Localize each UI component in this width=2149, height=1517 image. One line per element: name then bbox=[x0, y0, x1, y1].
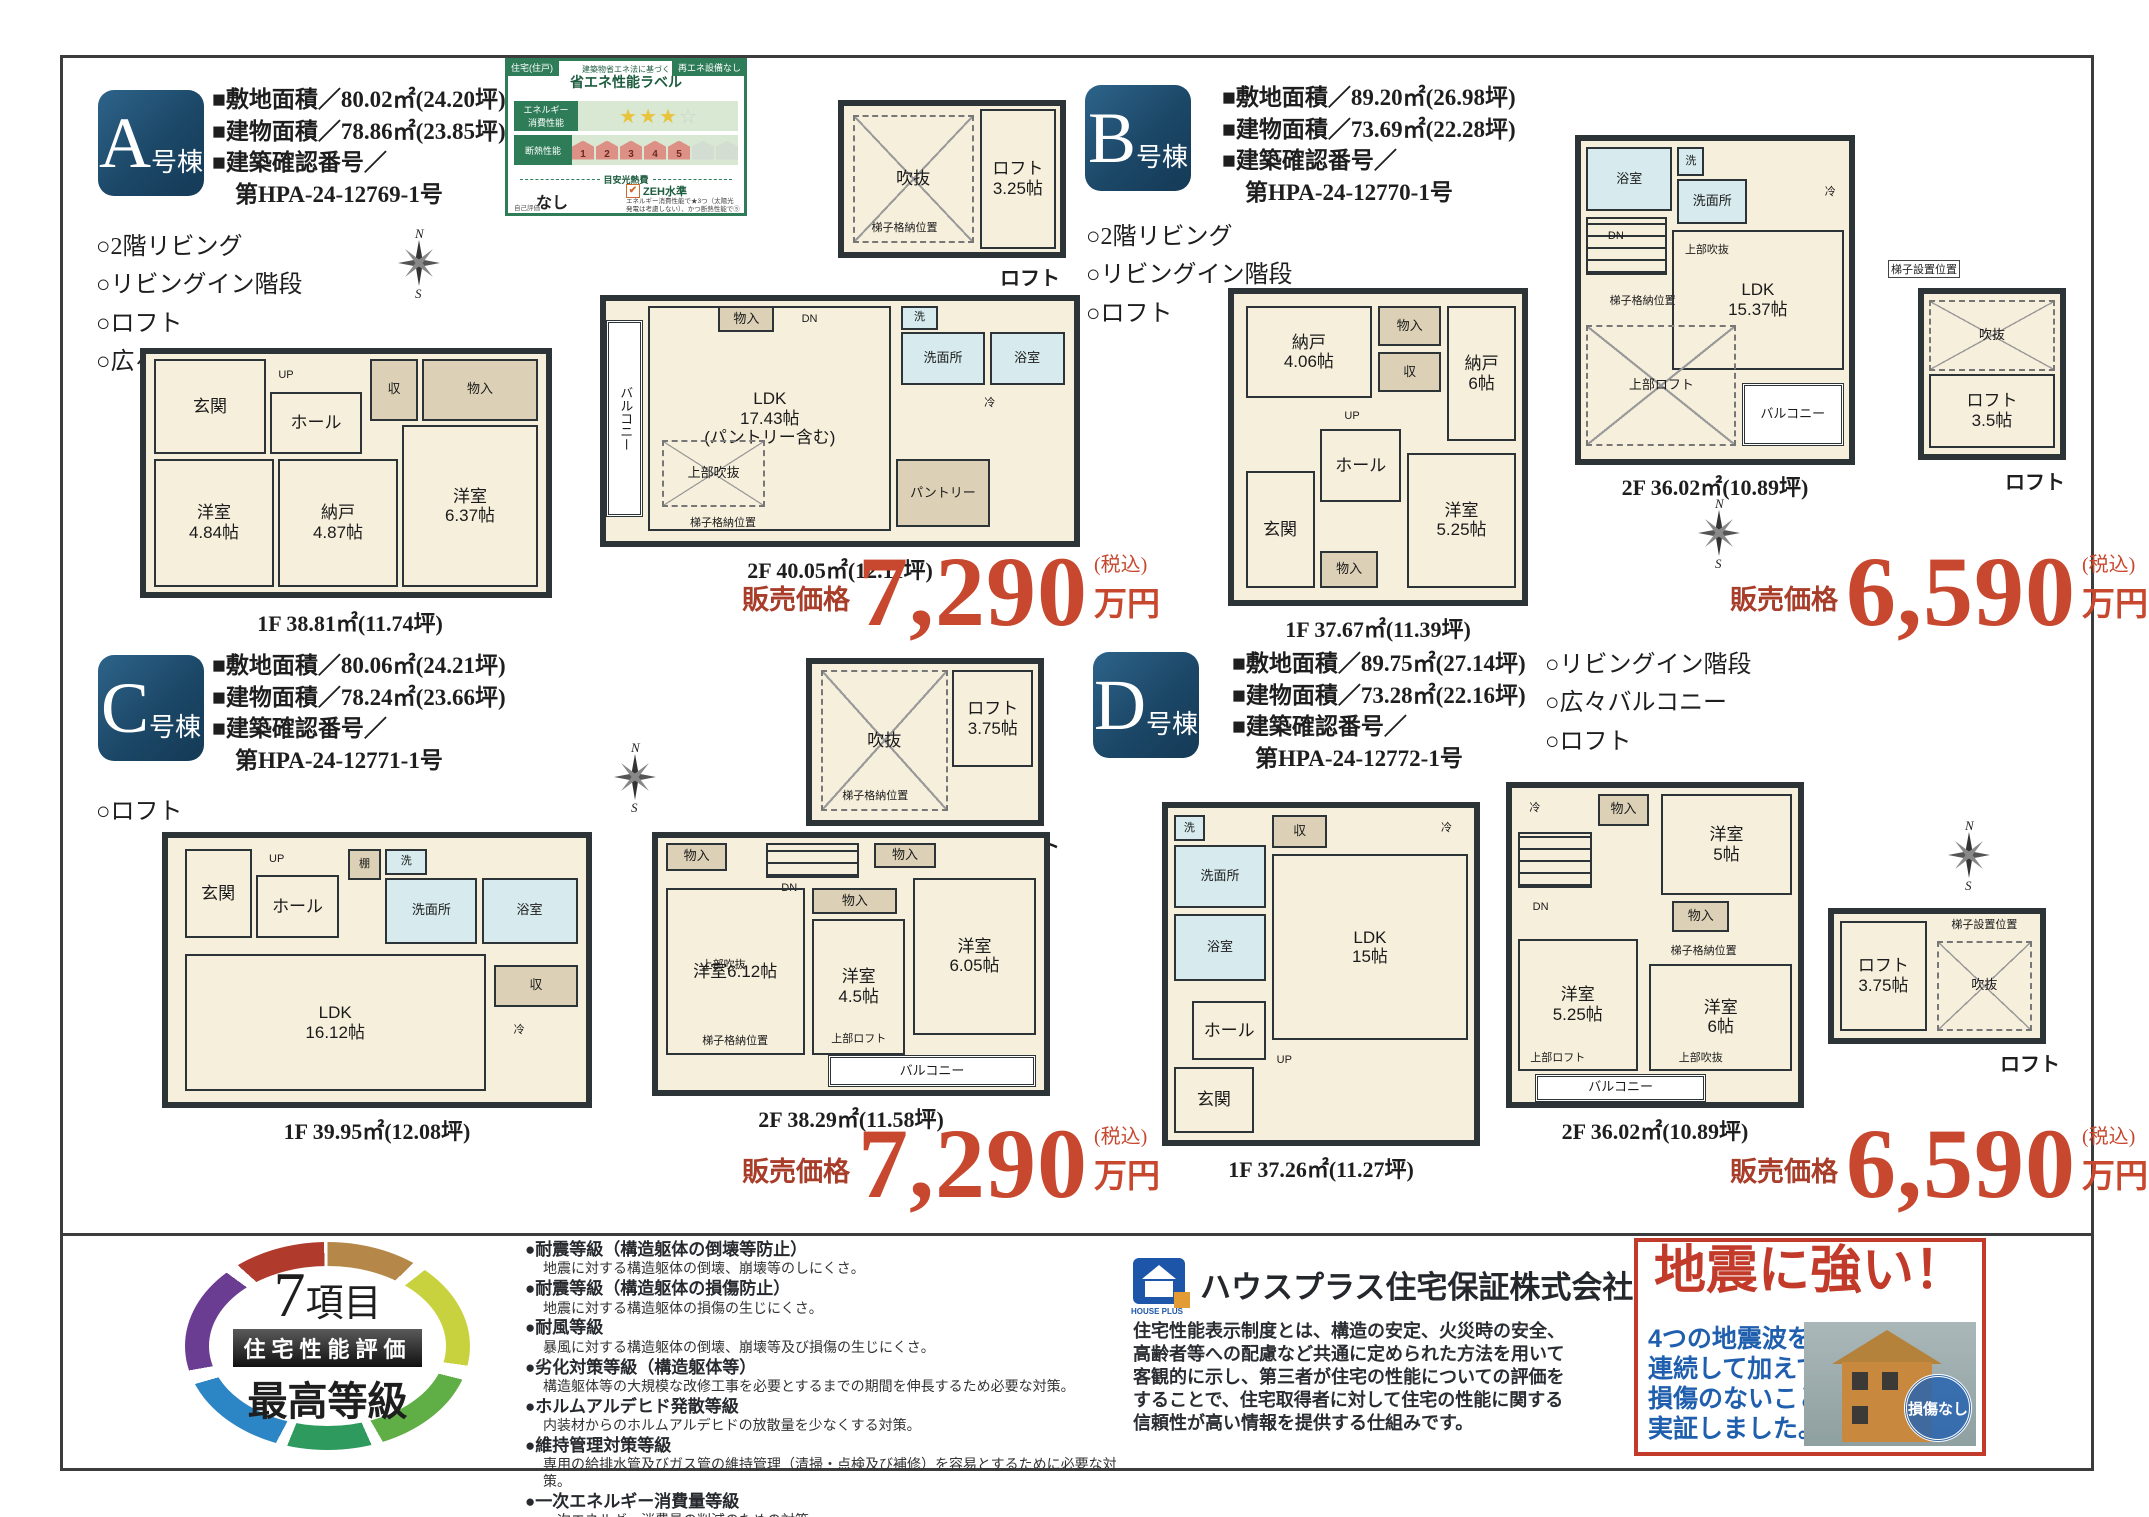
room: 物入 bbox=[1378, 306, 1441, 346]
room: 冷 bbox=[1817, 179, 1844, 204]
floorplan-d-loft: ロフト 3.75帖 梯子設置位置 吹抜 bbox=[1828, 908, 2046, 1044]
room: ロフト 3.75帖 bbox=[952, 670, 1033, 767]
energy-label-title: 建築物省エネ法に基づく 省エネ性能ラベル bbox=[508, 65, 744, 90]
room: ロフト 3.75帖 bbox=[1840, 921, 1927, 1030]
room: 洗面所 bbox=[901, 332, 985, 385]
room: 吹抜 bbox=[1929, 300, 2054, 370]
earthquake-test-photo: 損傷なし bbox=[1804, 1322, 1976, 1446]
building-c-features: ○ロフト bbox=[96, 793, 183, 831]
housing-performance-banner: 住宅性能評価 bbox=[233, 1329, 421, 1367]
room: 梯子格納位置 bbox=[662, 512, 784, 534]
building-c-badge: C 号棟 bbox=[98, 655, 204, 761]
room: 洋室 6.37帖 bbox=[402, 425, 538, 587]
room: 梯子格納位置 bbox=[826, 789, 925, 805]
room: 上部吹抜 bbox=[681, 954, 766, 977]
floorplan-c-1f-caption: 1F 39.95㎡(12.08坪) bbox=[162, 1114, 592, 1146]
house-plus-logo bbox=[1133, 1258, 1185, 1304]
star-icon: ★ bbox=[619, 104, 637, 129]
photo-house-window bbox=[1882, 1372, 1898, 1390]
zeh-note: エネルギー消費性能で★3つ（太陽光発電は考慮しない）、かつ断熱性能で⑤ bbox=[626, 198, 740, 214]
room: 物入 bbox=[1672, 901, 1729, 932]
energy-consumption-row: エネルギー 消費性能 ★ ★ ★ ☆ bbox=[514, 101, 738, 131]
floorplan-c-loft: 吹抜 梯子格納位置 ロフト 3.75帖 bbox=[806, 658, 1044, 826]
room: 納戸 6帖 bbox=[1447, 306, 1516, 441]
photo-house-window bbox=[1852, 1372, 1868, 1390]
room: 洗 bbox=[385, 849, 427, 875]
rating-desc: 一次エネルギー消費量の削減のための対策。 bbox=[525, 1512, 1137, 1517]
room: 物入 bbox=[874, 843, 936, 868]
room: 洗 bbox=[901, 306, 938, 330]
room: 物入 bbox=[666, 843, 728, 871]
house-level-icon: 1 bbox=[572, 141, 594, 160]
rating-title: ●ホルムアルデヒド発散等級 bbox=[525, 1397, 1137, 1417]
stairs bbox=[1518, 832, 1592, 889]
building-b-badge: B 号棟 bbox=[1085, 85, 1191, 191]
room: 梯子格納位置 bbox=[1655, 939, 1752, 964]
room: 冷 bbox=[971, 392, 1008, 414]
floorplan-b-1f-caption: 1F 37.67㎡(11.39坪) bbox=[1228, 612, 1528, 644]
building-c-specs: ■敷地面積／80.06㎡(24.21坪) ■建物面積／78.24㎡(23.66坪… bbox=[212, 650, 506, 777]
house-level-icon: 2 bbox=[596, 141, 618, 160]
floorplan-b-loft: 吹抜 ロフト 3.5帖 bbox=[1918, 288, 2066, 460]
house-level-off-icon bbox=[692, 141, 714, 160]
svg-text:S: S bbox=[631, 800, 638, 814]
seven-items-badge-center: 7項目 住宅性能評価 最高等級 bbox=[209, 1266, 446, 1426]
room: 洗面所 bbox=[1677, 179, 1747, 224]
rating-desc: 専用の給排水管及びガス管の維持管理（清掃・点検及び補修）を容易とするために必要な… bbox=[525, 1456, 1137, 1490]
price-d: 販売価格 6,590 (税込) 万円 bbox=[1730, 1120, 2148, 1205]
room: 物入 bbox=[812, 888, 897, 913]
svg-text:N: N bbox=[1964, 818, 1975, 833]
rating-list: ●耐震等級（構造躯体の倒壊等防止） 地震に対する構造躯体の倒壊、崩壊等のしにくさ… bbox=[525, 1240, 1137, 1517]
ladder-position-label: 梯子設置位置 bbox=[1888, 260, 1960, 278]
room: UP bbox=[1338, 404, 1367, 428]
earthquake-title: 地震に強い！ bbox=[1638, 1246, 1982, 1298]
room: 収 bbox=[1378, 352, 1441, 392]
room: 洗面所 bbox=[1174, 845, 1266, 908]
compass-icon: N S bbox=[1940, 818, 1998, 892]
rating-title: ●耐震等級（構造躯体の倒壊等防止） bbox=[525, 1240, 1137, 1260]
room: 洋室 5帖 bbox=[1661, 794, 1793, 894]
company-description: 住宅性能表示制度とは、構造の安定、火災時の安全、 高齢者等への配慮など共通に定め… bbox=[1133, 1320, 1653, 1435]
room: 洗面所 bbox=[385, 878, 477, 944]
room: 洗 bbox=[1677, 147, 1704, 176]
room: 洋室 5.25帖 bbox=[1407, 453, 1516, 588]
room: 冷 bbox=[494, 1018, 544, 1044]
photo-house-window bbox=[1852, 1406, 1868, 1424]
room: 浴室 bbox=[1174, 914, 1266, 980]
room: バルコニー bbox=[606, 320, 643, 517]
room: LDK 15帖 bbox=[1272, 854, 1468, 1040]
room: UP bbox=[270, 364, 302, 388]
room: 納戸 4.87帖 bbox=[278, 459, 398, 588]
room: 洗 bbox=[1174, 815, 1205, 842]
logo-roof-icon bbox=[1142, 1265, 1176, 1279]
room: 梯子格納位置 bbox=[677, 1030, 793, 1053]
room: 浴室 bbox=[1586, 147, 1672, 211]
rating-desc: 構造躯体等の大規模な改修工事を必要とするまでの期間を伸長するため必要な対策。 bbox=[525, 1378, 1137, 1395]
floorplan-b-2f: 浴室 洗 洗面所 冷 DN 梯子格納位置 LDK 15.37帖 上部吹抜 上部ロ… bbox=[1575, 135, 1855, 465]
energy-label: 住宅(住戸) 再エネ設備なし 建築物省エネ法に基づく 省エネ性能ラベル エネルギ… bbox=[505, 58, 747, 216]
rating-desc: 地震に対する構造躯体の倒壊、崩壊等のしにくさ。 bbox=[525, 1260, 1137, 1277]
room: 物入 bbox=[1598, 794, 1649, 825]
floorplan-c-1f: 玄関 UP ホール 棚 洗 洗面所 浴室 LDK 16.12帖 収 冷 bbox=[162, 832, 592, 1108]
compass-icon: N S bbox=[606, 740, 664, 814]
seven-items-badge: 7項目 住宅性能評価 最高等級 bbox=[185, 1242, 470, 1450]
room: ホール bbox=[256, 875, 340, 938]
footer-divider bbox=[60, 1233, 2094, 1236]
floorplan-d-1f-caption: 1F 37.26㎡(11.27坪) bbox=[1162, 1152, 1480, 1184]
house-level-icon: 3 bbox=[620, 141, 642, 160]
room: DN bbox=[1529, 895, 1552, 920]
price-c: 販売価格 7,290 (税込) 万円 bbox=[742, 1120, 1160, 1205]
star-empty-icon: ☆ bbox=[679, 104, 697, 129]
compass-icon: N S bbox=[390, 226, 448, 300]
floorplan-a-2f: バルコニー LDK 17.43帖 (パントリー含む) 上部吹抜 梯子格納位置 物… bbox=[600, 295, 1080, 547]
room: 上部吹抜 bbox=[1672, 1045, 1729, 1070]
room: パントリー bbox=[896, 459, 990, 526]
room: UP bbox=[1272, 1047, 1296, 1074]
room: 玄関 bbox=[185, 849, 252, 939]
room: ホール bbox=[1192, 1001, 1265, 1061]
house-level-icon: 5 bbox=[668, 141, 690, 160]
room: 玄関 bbox=[1246, 471, 1315, 587]
room: バルコニー bbox=[1535, 1074, 1707, 1102]
room: 物入 bbox=[422, 359, 538, 421]
room: 上部吹抜 bbox=[1677, 236, 1736, 265]
insulation-row: 断熱性能 1 2 3 4 5 bbox=[514, 135, 738, 165]
room: 冷 bbox=[1518, 794, 1552, 822]
room: DN bbox=[1602, 224, 1629, 249]
rating-desc: 内装材からのホルムアルデヒドの放散量を少なくする対策。 bbox=[525, 1417, 1137, 1434]
floorplan-d-2f: 冷 物入 洋室 5帖 DN 物入 梯子格納位置 洋室 6帖 上部吹抜 洋室 5.… bbox=[1506, 782, 1804, 1108]
check-icon: ✔ bbox=[626, 184, 640, 198]
energy-stars: ★ ★ ★ ☆ bbox=[578, 101, 738, 131]
room: 玄関 bbox=[154, 359, 266, 454]
room: 上部吹抜 bbox=[662, 440, 765, 507]
building-a-badge: A 号棟 bbox=[98, 90, 204, 196]
svg-text:S: S bbox=[415, 286, 422, 300]
energy-label-footer: 自己評価 bbox=[514, 202, 540, 212]
floorplan-b-1f: 納戸 4.06帖 物入 収 納戸 6帖 UP ホール 玄関 物入 洋室 5.25… bbox=[1228, 288, 1528, 606]
room: 物入 bbox=[1320, 551, 1378, 588]
room: 上部ロフト bbox=[820, 1030, 897, 1050]
photo-house-roof bbox=[1832, 1330, 1942, 1364]
room: バルコニー bbox=[828, 1055, 1036, 1088]
room: ホール bbox=[1320, 429, 1401, 502]
rating-title: ●劣化対策等級（構造躯体等） bbox=[525, 1358, 1137, 1378]
rating-desc: 地震に対する構造躯体の損傷の生じにくさ。 bbox=[525, 1300, 1137, 1317]
room: DN bbox=[793, 308, 826, 330]
rating-desc: 暴風に対する構造躯体の倒壊、崩壊等及び損傷の生じにくさ。 bbox=[525, 1339, 1137, 1356]
building-d-features: ○リビングイン階段 ○広々バルコニー ○ロフト bbox=[1545, 646, 1752, 761]
logo-body-icon bbox=[1145, 1281, 1173, 1297]
room: 上部ロフト bbox=[1586, 325, 1736, 446]
room: 洋室 6.05帖 bbox=[913, 878, 1037, 1034]
house-plus-logo-text: HOUSE PLUS bbox=[1131, 1307, 1183, 1316]
room: 浴室 bbox=[990, 332, 1065, 385]
price-a: 販売価格 7,290 (税込) 万円 bbox=[742, 548, 1160, 633]
rating-title: ●維持管理対策等級 bbox=[525, 1436, 1137, 1456]
zeh-row: ✔ ZEH水準 bbox=[626, 183, 687, 199]
rating-title: ●耐風等級 bbox=[525, 1318, 1137, 1338]
no-damage-badge: 損傷なし bbox=[1904, 1374, 1972, 1442]
floorplan-d-1f: 洗 洗面所 浴室 収 冷 LDK 15帖 ホール 玄関 UP bbox=[1162, 802, 1480, 1146]
price-b: 販売価格 6,590 (税込) 万円 bbox=[1730, 548, 2148, 633]
energy-cost-value: なし bbox=[536, 189, 568, 213]
room: 収 bbox=[494, 965, 578, 1007]
svg-text:N: N bbox=[414, 226, 425, 241]
highest-grade-label: 最高等級 bbox=[248, 1369, 408, 1427]
rating-title: ●耐震等級（構造躯体の損傷防止） bbox=[525, 1279, 1137, 1299]
loft-caption: ロフト bbox=[1000, 262, 1060, 291]
house-level-off-icon bbox=[716, 141, 738, 160]
earthquake-box: 地震に強い！ 4つの地震波を 連続して加えても 損傷のないことを 実証しました。… bbox=[1634, 1238, 1986, 1456]
room: 上部ロフト bbox=[1529, 1045, 1586, 1070]
svg-text:S: S bbox=[1965, 878, 1972, 892]
building-d-specs: ■敷地面積／89.75㎡(27.14坪) ■建物面積／73.28㎡(22.16坪… bbox=[1232, 648, 1526, 775]
house-level-icon: 4 bbox=[644, 141, 666, 160]
room: ホール bbox=[270, 392, 362, 454]
room: 玄関 bbox=[1174, 1067, 1254, 1133]
room: バルコニー bbox=[1742, 383, 1844, 447]
room: 梯子設置位置 bbox=[1937, 916, 2032, 933]
loft-caption: ロフト bbox=[2000, 1048, 2060, 1077]
building-d-badge: D 号棟 bbox=[1093, 652, 1199, 758]
rating-title: ●一次エネルギー消費量等級 bbox=[525, 1492, 1137, 1512]
building-a-specs: ■敷地面積／80.02㎡(24.20坪) ■建物面積／78.86㎡(23.85坪… bbox=[212, 84, 506, 211]
svg-text:S: S bbox=[1715, 556, 1722, 570]
floorplan-a-1f-caption: 1F 38.81㎡(11.74坪) bbox=[150, 606, 550, 638]
star-icon: ★ bbox=[639, 104, 657, 129]
room: ロフト 3.25帖 bbox=[980, 109, 1056, 249]
flyer-sheet: A 号棟 ■敷地面積／80.02㎡(24.20坪) ■建物面積／78.86㎡(2… bbox=[0, 0, 2149, 1517]
star-icon: ★ bbox=[659, 104, 677, 129]
room: UP bbox=[260, 849, 293, 870]
loft-caption: ロフト bbox=[2005, 466, 2065, 495]
building-b-specs: ■敷地面積／89.20㎡(26.98坪) ■建物面積／73.69㎡(22.28坪… bbox=[1222, 82, 1516, 209]
room: 収 bbox=[370, 359, 418, 421]
floorplan-c-2f: 物入 DN 物入 洋室6.12帖 上部吹抜 梯子格納位置 洋室 4.5帖 上部ロ… bbox=[652, 832, 1050, 1096]
stairs bbox=[766, 843, 859, 878]
floorplan-a-loft: 吹抜 梯子格納位置 ロフト 3.25帖 bbox=[838, 100, 1066, 258]
svg-text:N: N bbox=[1714, 496, 1725, 511]
room: 梯子格納位置 bbox=[857, 220, 952, 238]
room: 収 bbox=[1272, 815, 1327, 848]
room: 吹抜 bbox=[1937, 941, 2032, 1030]
room: 冷 bbox=[1425, 815, 1468, 842]
floorplan-a-1f: 玄関 UP ホール 収 物入 洋室 4.84帖 納戸 4.87帖 洋室 6.37… bbox=[140, 348, 552, 598]
room: 物入 bbox=[718, 306, 774, 332]
company-name: ハウスプラス住宅保証株式会社 bbox=[1200, 1262, 1633, 1307]
insulation-houses: 1 2 3 4 5 bbox=[572, 135, 738, 165]
room: 洋室 4.84帖 bbox=[154, 459, 274, 588]
room: ロフト 3.5帖 bbox=[1929, 374, 2054, 448]
room: 棚 bbox=[348, 849, 381, 881]
room: 浴室 bbox=[482, 878, 578, 944]
room: 納戸 4.06帖 bbox=[1246, 306, 1373, 398]
room: LDK 16.12帖 bbox=[185, 954, 486, 1091]
svg-text:N: N bbox=[630, 740, 641, 755]
logo-orange-square-icon bbox=[1174, 1292, 1190, 1308]
